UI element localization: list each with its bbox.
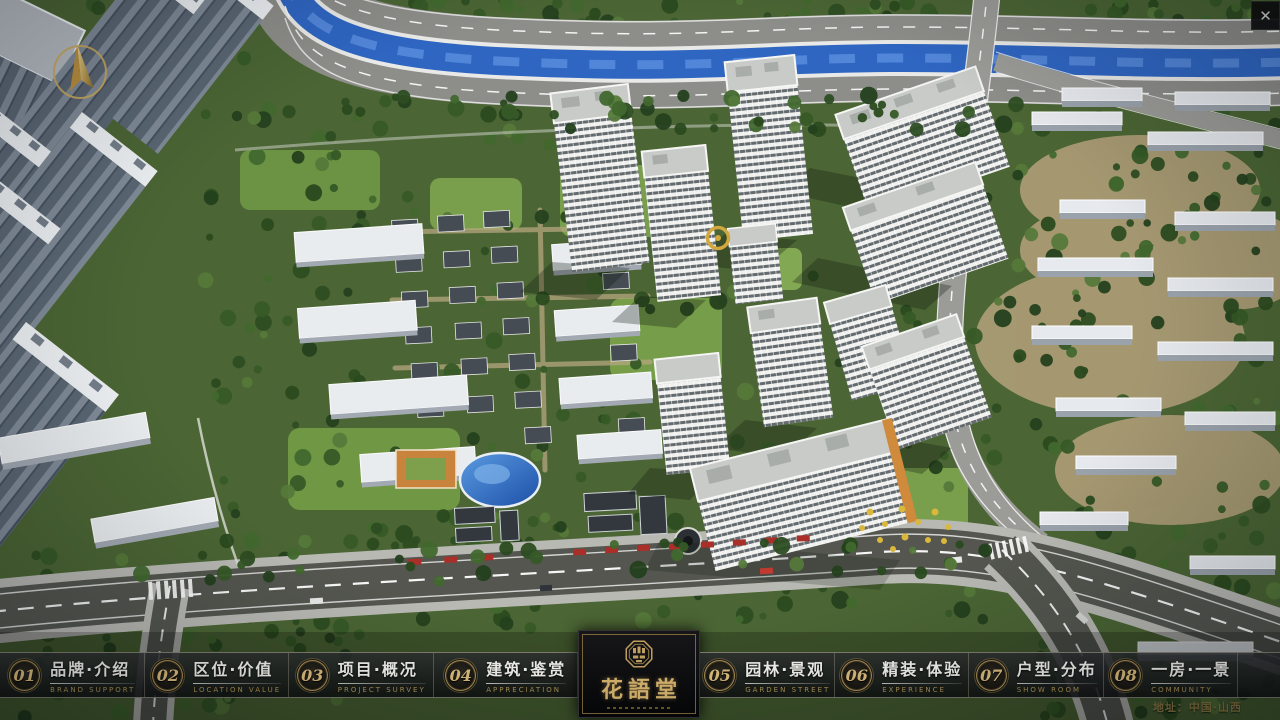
- nav-label-en: SHOW ROOM: [1017, 686, 1081, 694]
- nav-label-rule: [486, 683, 566, 684]
- project-logo-panel[interactable]: 花語堂: [578, 630, 700, 718]
- nav-badge-05: 05: [703, 659, 736, 692]
- presentation-window: ✕ 01 品牌·介绍 BRAND SUPPORT 02 区位·价值 LOCATI…: [0, 0, 1280, 720]
- nav-item-04-architecture[interactable]: 04 建筑·鉴赏 APPRECIATION: [434, 653, 579, 697]
- nav-item-01-brand[interactable]: 01 品牌·介绍 BRAND SUPPORT: [0, 653, 145, 697]
- nav-label-en: LOCATION VALUE: [193, 686, 281, 694]
- nav-label-rule: [338, 683, 426, 684]
- nav-label-zh: 一房·一景: [1151, 656, 1231, 680]
- nav-item-05-garden[interactable]: 05 园林·景观 GARDEN STREET: [700, 653, 835, 697]
- nav-label-zh: 区位·价值: [193, 656, 273, 680]
- bottom-nav-right: 05 园林·景观 GARDEN STREET 06 精装·体验 EXPERIEN…: [700, 652, 1280, 698]
- project-address: 地址：中国·山西: [1153, 699, 1242, 715]
- nav-badge-03: 03: [296, 659, 329, 692]
- nav-badge-01: 01: [8, 659, 41, 692]
- nav-label-rule: [745, 683, 830, 684]
- nav-badge-02: 02: [151, 659, 184, 692]
- nav-label-en: PROJECT SURVEY: [338, 686, 426, 694]
- logo-tagline-ornament: [607, 707, 671, 709]
- nav-badge-08: 08: [1109, 659, 1142, 692]
- bottom-nav-left: 01 品牌·介绍 BRAND SUPPORT 02 区位·价值 LOCATION…: [0, 652, 578, 698]
- clubhouse: [396, 450, 456, 488]
- nav-label-en: EXPERIENCE: [882, 686, 946, 694]
- nav-item-06-interior[interactable]: 06 精装·体验 EXPERIENCE: [835, 653, 970, 697]
- logo-frame: 花語堂: [582, 634, 696, 714]
- nav-label-zh: 建筑·鉴赏: [486, 656, 566, 680]
- nav-item-08-views[interactable]: 08 一房·一景 COMMUNITY: [1104, 653, 1239, 697]
- logo-seal-icon: [624, 639, 654, 669]
- nav-label-rule: [50, 683, 135, 684]
- nav-label-rule: [193, 683, 281, 684]
- nav-label-zh: 园林·景观: [745, 656, 825, 680]
- nav-badge-07: 07: [975, 659, 1008, 692]
- nav-label-en: GARDEN STREET: [745, 686, 830, 694]
- nav-spacer: [1238, 653, 1280, 697]
- nav-item-07-floorplans[interactable]: 07 户型·分布 SHOW ROOM: [969, 653, 1104, 697]
- nav-item-02-location[interactable]: 02 区位·价值 LOCATION VALUE: [145, 653, 290, 697]
- nav-badge-06: 06: [840, 659, 873, 692]
- project-name: 花語堂: [601, 672, 682, 704]
- nav-label-zh: 项目·概况: [338, 656, 418, 680]
- nav-label-en: COMMUNITY: [1151, 686, 1212, 694]
- nav-badge-04: 04: [444, 659, 477, 692]
- nav-label-zh: 品牌·介绍: [50, 656, 130, 680]
- nav-label-en: APPRECIATION: [486, 686, 561, 694]
- map-viewport[interactable]: [0, 0, 1280, 720]
- nav-label-rule: [1017, 683, 1097, 684]
- close-button[interactable]: ✕: [1251, 1, 1280, 30]
- nav-item-03-project[interactable]: 03 项目·概况 PROJECT SURVEY: [289, 653, 434, 697]
- gold-ring-center: [715, 235, 721, 241]
- nav-label-rule: [882, 683, 962, 684]
- nav-label-zh: 精装·体验: [882, 656, 962, 680]
- nav-label-zh: 户型·分布: [1017, 656, 1097, 680]
- nav-label-rule: [1151, 683, 1231, 684]
- pond: [460, 453, 540, 507]
- nav-label-en: BRAND SUPPORT: [50, 686, 135, 694]
